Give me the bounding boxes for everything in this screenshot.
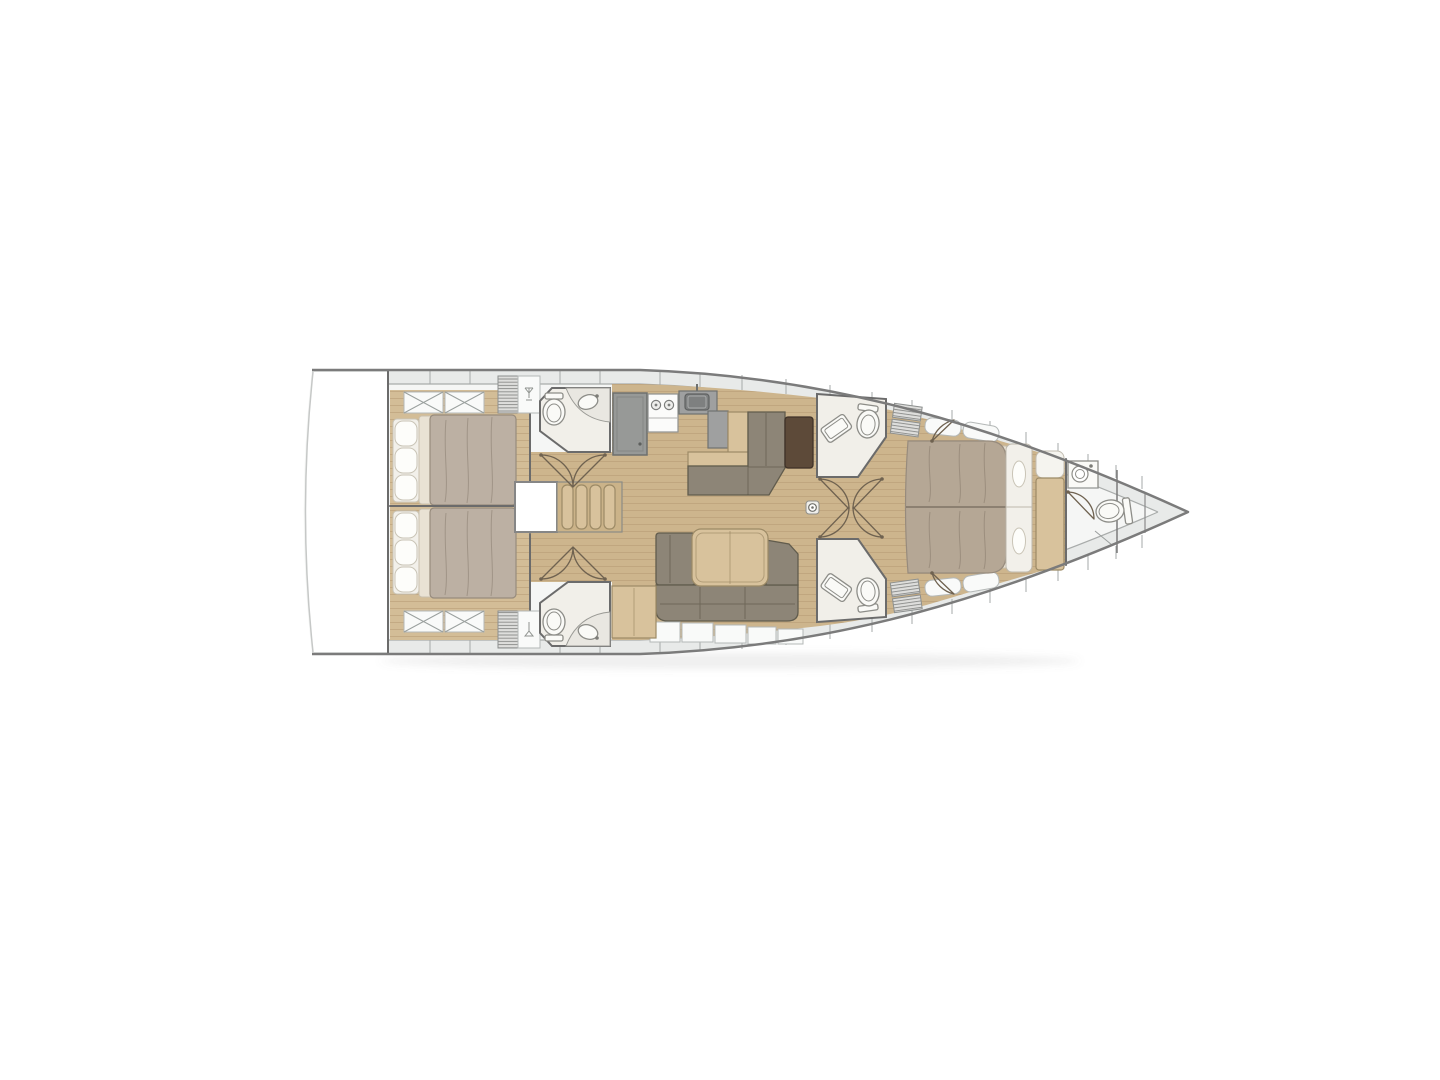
pillow (395, 421, 417, 446)
double-bed-mattress (430, 415, 516, 505)
stair-tread (576, 485, 587, 529)
pillow (395, 475, 417, 500)
stove-burner-center (668, 404, 671, 407)
wardrobe-vent-bottom (498, 611, 518, 648)
wardrobe-vent-top (498, 376, 518, 413)
hull-shadow (380, 653, 1080, 669)
stair-tread (604, 485, 615, 529)
toilet (543, 609, 565, 635)
bench-seat (1036, 478, 1064, 570)
galley-peninsula (708, 411, 728, 448)
stair-tread (562, 485, 573, 529)
pillow (395, 567, 417, 592)
stair-tread (590, 485, 601, 529)
double-bed-mattress (430, 508, 516, 598)
stove-unit (648, 394, 678, 432)
fridge-handle (638, 442, 641, 445)
faucet (595, 394, 599, 398)
toilet-tank (545, 393, 563, 399)
faucet (1089, 464, 1093, 468)
salon-sofa-left-arm (656, 533, 695, 585)
pillow (395, 513, 417, 538)
mast-step (806, 501, 819, 514)
pillow (395, 448, 417, 473)
engine-box (515, 482, 557, 532)
pillow (1013, 461, 1026, 487)
pillow (395, 540, 417, 565)
stove-burner-center (655, 404, 658, 407)
faucet (595, 636, 599, 640)
forward-cabin (906, 417, 1067, 597)
salon-sofa-bottom (656, 585, 798, 621)
toilet (543, 399, 565, 425)
fridge (613, 393, 647, 455)
companionway (515, 482, 622, 532)
chart-table (785, 417, 813, 468)
toilet-tank (545, 635, 563, 641)
swim-platform (306, 372, 389, 652)
nav-trim-horizontal (688, 452, 748, 466)
nav-trim-vertical (728, 412, 748, 453)
boat-floor-plan-canvas (0, 0, 1440, 1080)
yacht-layout-diagram (0, 0, 1440, 1080)
pillow (1013, 528, 1026, 554)
